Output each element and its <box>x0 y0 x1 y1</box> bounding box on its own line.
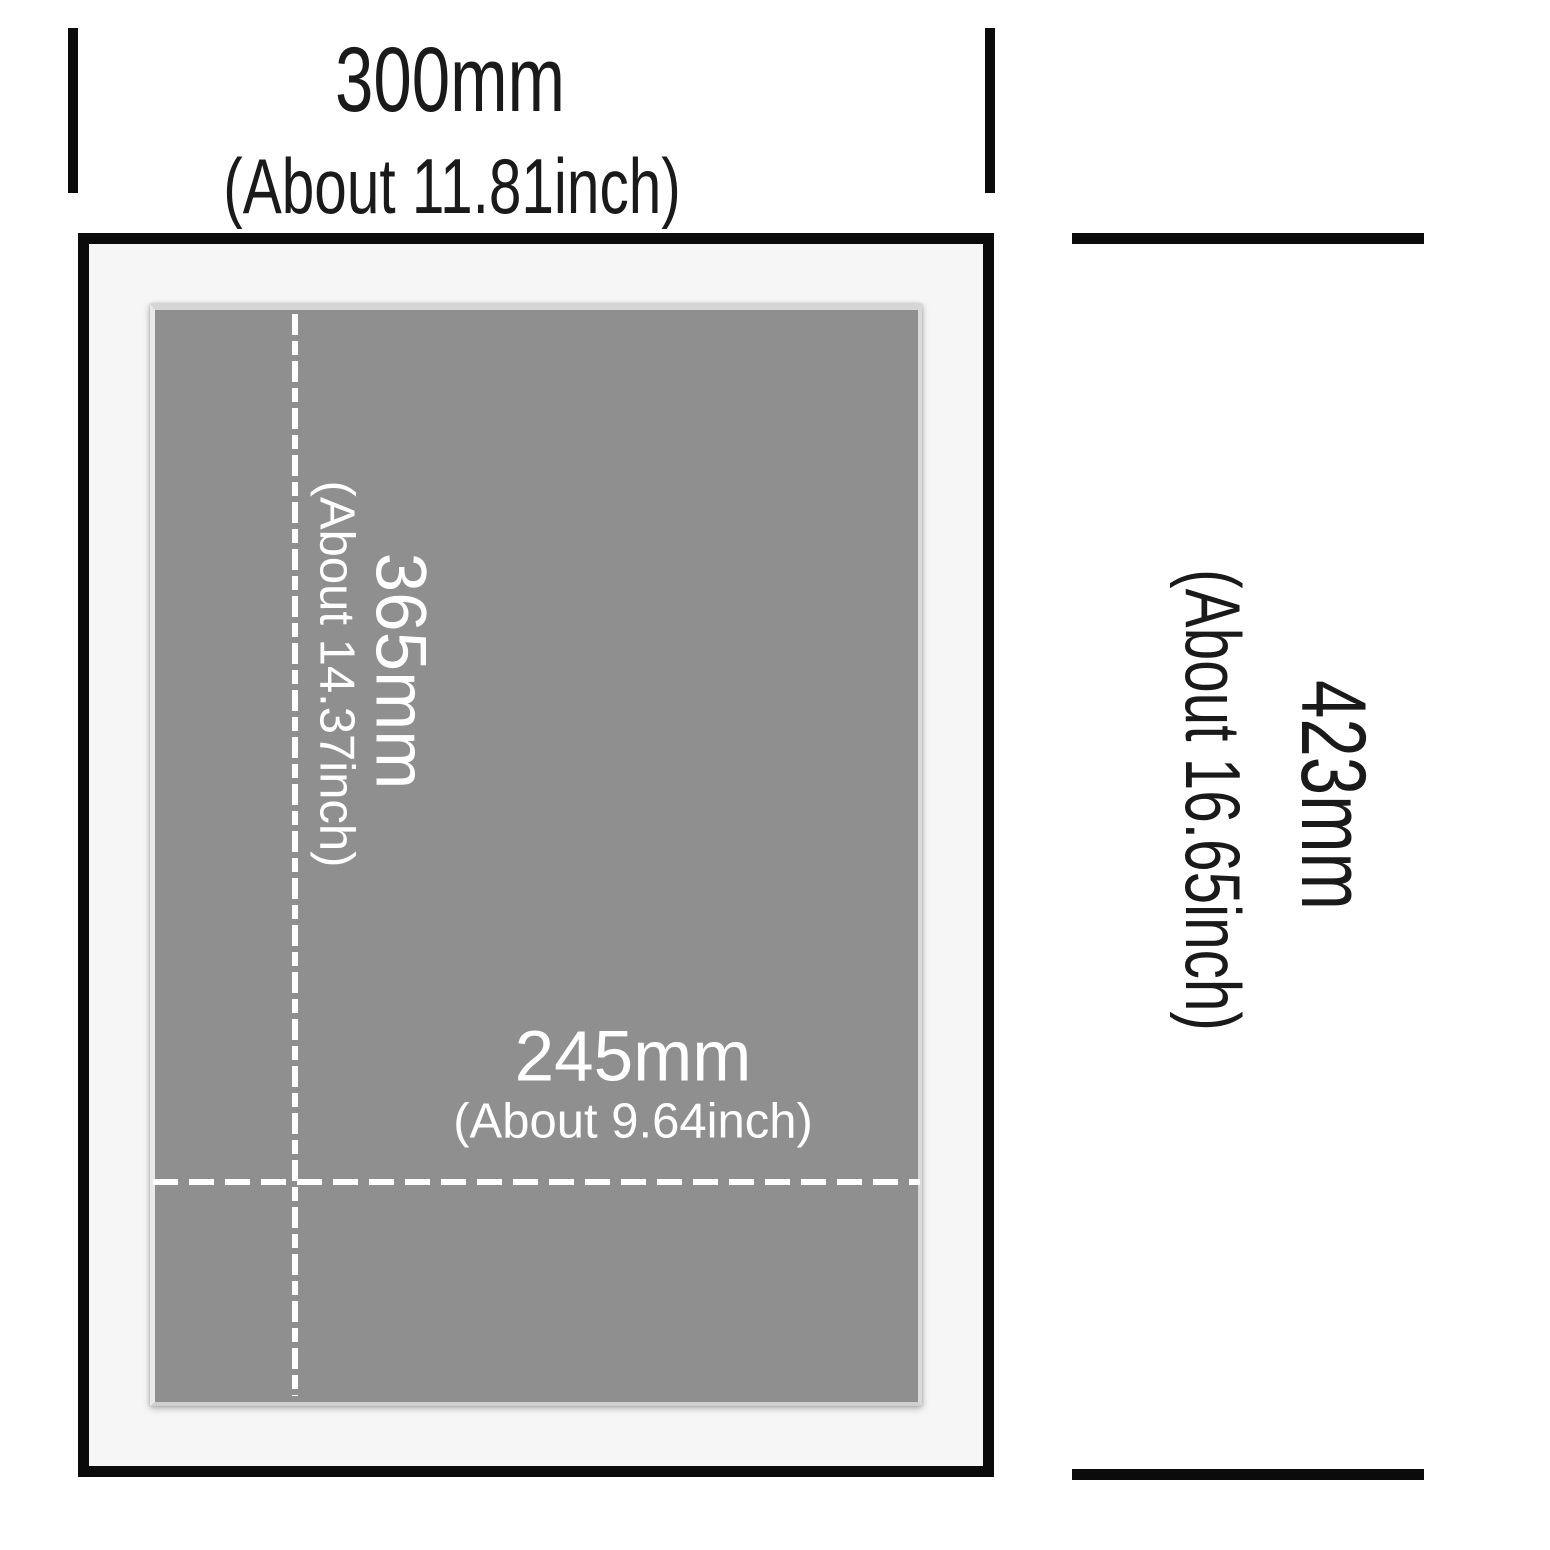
height-bracket-top-bar <box>1072 233 1424 244</box>
height-bracket-bottom-bar <box>1072 1469 1424 1480</box>
outer-width-approx-label: (About 11.81inch) <box>223 147 680 225</box>
dimension-diagram: 300mm (About 11.81inch) 365mm (About 14.… <box>0 0 1550 1550</box>
outer-width-value-label: 300mm <box>335 34 565 126</box>
opening-width-value-label: 245mm <box>515 1022 752 1093</box>
guide-lines <box>153 310 922 1406</box>
opening-height-approx-label: (About 14.37inch) <box>312 481 361 868</box>
opening-width-approx-label: (About 9.64inch) <box>453 1098 813 1147</box>
width-bracket-right-tick <box>985 28 995 193</box>
outer-height-value-label: 423mm <box>1287 680 1379 910</box>
width-bracket-left-tick <box>68 28 78 193</box>
outer-height-approx-label: (About 16.65inch) <box>1174 569 1252 1031</box>
opening-height-value-label: 365mm <box>365 553 436 790</box>
